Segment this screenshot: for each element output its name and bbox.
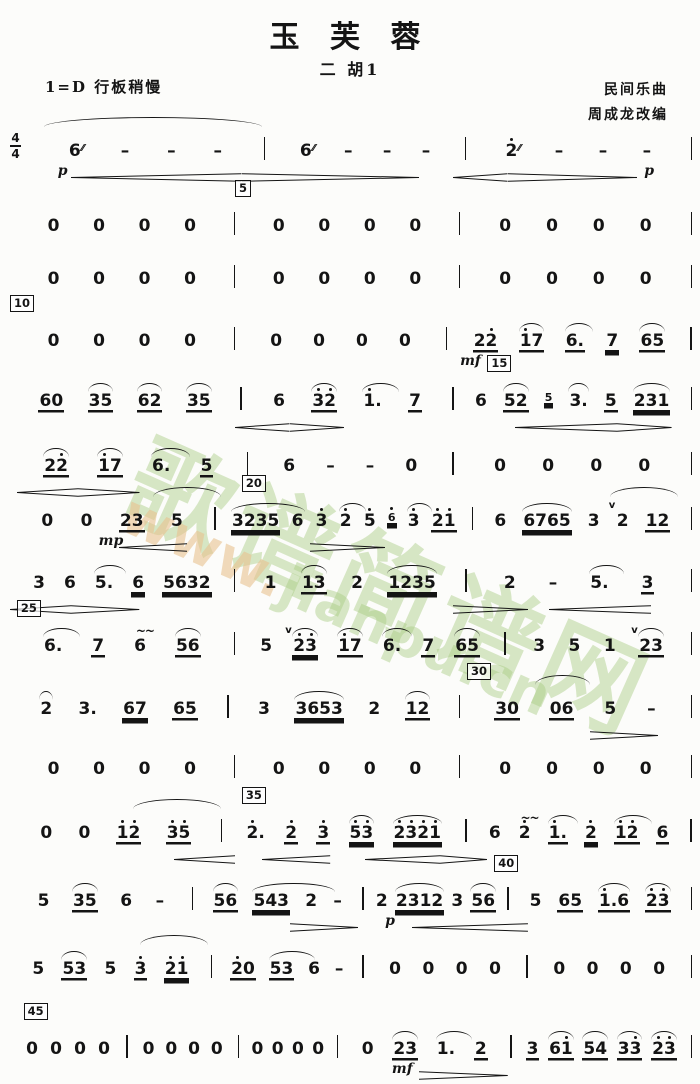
note-group: 1 (603, 638, 617, 655)
note-digit: 5 (570, 893, 582, 910)
note-digit: 2 (417, 701, 429, 718)
note-group: 0 (552, 961, 566, 978)
note-digit: 0 (252, 1041, 264, 1058)
decrescendo-hairpin (419, 1065, 508, 1074)
note-group: 0 (73, 1041, 87, 1058)
note-group: 5632 (162, 575, 211, 592)
note-digit: 0 (139, 271, 151, 288)
measure: 5356– (10, 893, 192, 910)
note-group: 0 (592, 761, 606, 778)
slur-arc (407, 503, 432, 512)
note-digit: 0 (489, 961, 501, 978)
note-digit: 2 (585, 825, 597, 842)
note-digit: 0 (93, 761, 105, 778)
slur-arc (72, 883, 98, 892)
note-group: 65 (639, 333, 665, 350)
note-group: 0 (545, 218, 559, 235)
slur-arc (387, 565, 436, 574)
slur-arc (392, 1031, 418, 1040)
measure: 20536– (212, 961, 362, 978)
note-group: 12 (116, 825, 142, 842)
measure: 0000 (460, 271, 690, 288)
note-digit: . (602, 575, 608, 592)
score-row-14: 553532120536–00000000 (10, 948, 692, 978)
note-digit: 6 (483, 893, 495, 910)
note-group: 6 (493, 513, 507, 530)
note-digit: 3 (317, 825, 329, 842)
crescendo-hairpin (412, 917, 528, 926)
note-digit: 5 (95, 575, 107, 592)
note-digit: 2 (305, 893, 317, 910)
crescendo-hairpin (17, 482, 78, 491)
slur-arc (617, 1031, 643, 1040)
slur-arc (519, 323, 545, 332)
note-digit: 2 (231, 961, 243, 978)
note-digit: 6 (69, 143, 81, 160)
note-digit: 3 (451, 893, 463, 910)
note-digit: 6 (523, 513, 535, 530)
note-group: 0 (49, 1041, 63, 1058)
note-digit: 5 (545, 392, 553, 403)
note-group: v23 (292, 638, 318, 655)
note-digit: 6 (44, 638, 56, 655)
note-group: 0 (545, 761, 559, 778)
note-group: 0 (25, 1041, 39, 1058)
note-digit: 2 (340, 513, 352, 530)
note-digit: 0 (364, 761, 376, 778)
note-group: 35 (88, 393, 114, 410)
decrescendo-hairpin (508, 167, 638, 176)
note-group: 0 (39, 825, 53, 842)
rehearsal-number: 40 (494, 855, 518, 872)
measure: 2⁄⁄––– (466, 143, 690, 160)
note-digit: 3 (412, 575, 424, 592)
note-digit: 3 (630, 1041, 642, 1058)
note-group: 3 (526, 1041, 540, 1058)
barline (691, 452, 693, 475)
measure: 565432– (193, 893, 362, 910)
measure: 5651.623 (509, 893, 691, 910)
note-digit: 0 (356, 333, 368, 350)
note-group: 35 (166, 825, 192, 842)
note-digit: 6 (64, 575, 76, 592)
note-digit: 5 (268, 513, 280, 530)
note-digit: 2 (400, 575, 412, 592)
note-group: 0 (142, 1041, 156, 1058)
note-digit: 5 (38, 893, 50, 910)
note-digit: 0 (50, 1041, 62, 1058)
note-group: – (421, 143, 432, 160)
rehearsal-number: 30 (467, 663, 491, 680)
note-group: 0 (40, 513, 54, 530)
score-row-6: 22176.56––00000 (10, 445, 692, 475)
note-digit: 0 (640, 761, 652, 778)
note-digit: 2 (247, 825, 259, 842)
note-digit: 5 (604, 701, 616, 718)
note-digit: 3 (258, 701, 270, 718)
note-digit: . (395, 638, 401, 655)
note-digit: 7 (135, 701, 147, 718)
crescendo-hairpin (365, 849, 440, 858)
breath-mark-icon: v (285, 626, 292, 636)
note-digit: 3 (89, 393, 101, 410)
barline (691, 137, 693, 160)
note-digit: 1 (406, 701, 418, 718)
note-digit: 0 (409, 218, 421, 235)
note-group: 65 (172, 701, 198, 718)
note-group: 65 (454, 638, 480, 655)
note-digit: 0 (98, 1041, 110, 1058)
note-digit: 5 (85, 893, 97, 910)
note-group: 0 (272, 218, 286, 235)
note-digit: 5 (569, 638, 581, 655)
note-group: 5. (589, 575, 609, 592)
note-group: 0 (271, 1041, 285, 1058)
note-digit: 0 (640, 218, 652, 235)
note-digit: 0 (409, 271, 421, 288)
note-digit: 3 (314, 575, 326, 592)
measure: 0000 (10, 1041, 126, 1058)
note-group: – (554, 143, 565, 160)
note-group: 3235 (231, 513, 280, 530)
note-group: v2 (616, 513, 630, 530)
note-group: 0 (363, 271, 377, 288)
note-digit: 5 (100, 393, 112, 410)
slur-arc (39, 691, 53, 700)
decrescendo-hairpin (78, 482, 139, 491)
note-group: 0 (592, 218, 606, 235)
barline (691, 265, 693, 288)
note-group: 0 (408, 761, 422, 778)
rehearsal-number: 5 (235, 180, 251, 197)
note-digit: 3 (651, 638, 663, 655)
crescendo-hairpin (235, 417, 290, 426)
note-group: 2 (367, 701, 381, 718)
measure: 5535321 (10, 961, 211, 978)
note-digit: 2 (376, 893, 388, 910)
note-group: 3. (78, 701, 98, 718)
breath-mark-icon: v (631, 626, 638, 636)
note-group: 5 (200, 458, 214, 475)
measure: 0000 (460, 761, 690, 778)
note-digit: . (107, 575, 113, 592)
note-group: 17 (519, 333, 545, 350)
note-digit: 2 (504, 575, 516, 592)
tie-arc (133, 799, 222, 809)
note-group: 5 (37, 893, 51, 910)
note-digit: 5 (214, 893, 226, 910)
slur-arc (252, 883, 335, 892)
note-group: 7 (408, 393, 422, 410)
note-group: 0 (47, 333, 61, 350)
note-group: 65 (557, 893, 583, 910)
crescendo-hairpin (262, 849, 330, 858)
note-group: 0 (545, 271, 559, 288)
note-digit: 6 (120, 893, 132, 910)
note-digit: 3 (405, 825, 417, 842)
note-digit: 1 (561, 1041, 573, 1058)
slur-arc (633, 383, 671, 392)
note-digit: 0 (405, 458, 417, 475)
barline (691, 755, 693, 778)
score-row-9: 6.76~~565v23176.765351v2325 (10, 625, 692, 655)
note-group: 543 (252, 893, 290, 910)
score-row-13: 5356–565432–223123565651.62340p (10, 880, 692, 910)
note-group: – (365, 458, 376, 475)
note-digit: 5 (199, 393, 211, 410)
note-digit: 0 (494, 458, 506, 475)
note-digit: 0 (273, 761, 285, 778)
measure: 30065– (460, 701, 690, 718)
note-group: 12 (614, 825, 640, 842)
measure: 365.65632 (10, 575, 234, 592)
note-digit: . (164, 458, 170, 475)
slur-arc (395, 883, 444, 892)
note-digit: 5 (185, 701, 197, 718)
note-digit: 0 (389, 961, 401, 978)
note-group: 0 (312, 333, 326, 350)
slur-arc (522, 503, 571, 512)
slur-arc (645, 883, 671, 892)
note-digit: . (578, 333, 584, 350)
tie-arc (140, 935, 208, 945)
note-digit: 6 (558, 893, 570, 910)
note-group: 0 (80, 513, 94, 530)
note-digit: 0 (184, 218, 196, 235)
note-group: 23 (645, 893, 671, 910)
note-digit: 0 (640, 271, 652, 288)
note-digit: 3 (33, 575, 45, 592)
note-digit: . (449, 1041, 455, 1058)
note-digit: 2 (324, 393, 336, 410)
measure: 0000 (235, 271, 459, 288)
note-digit: 1 (265, 575, 277, 592)
note-digit: 0 (620, 961, 632, 978)
note-group: 6765 (522, 513, 571, 530)
note-group: 17 (97, 458, 123, 475)
dash-rest: – (647, 701, 656, 718)
note-digit: 2 (617, 513, 629, 530)
note-digit: . (56, 638, 62, 655)
note-group: 0 (210, 1041, 224, 1058)
decrescendo-hairpin (290, 417, 345, 426)
note-group: 7 (605, 333, 619, 350)
note-digit: 1 (98, 458, 110, 475)
note-digit: 6 (300, 143, 312, 160)
slur-arc (651, 1031, 677, 1040)
measure: 0000 (10, 271, 234, 288)
note-group: 0 (498, 271, 512, 288)
note-group: 0 (92, 333, 106, 350)
measure: 00235 (10, 513, 214, 530)
note-digit: 3 (361, 825, 373, 842)
note-group: 6 (119, 893, 133, 910)
decrescendo-hairpin (242, 167, 419, 176)
note-digit: 7 (422, 638, 434, 655)
note-group: 23 (392, 1041, 418, 1058)
note-digit: 6 (292, 513, 304, 530)
note-digit: 3 (73, 893, 85, 910)
note-group: 3 (315, 513, 329, 530)
note-group: 0 (272, 761, 286, 778)
dash-rest: – (549, 575, 558, 592)
measure: 60356235 (10, 393, 240, 410)
note-group: 0 (493, 458, 507, 475)
measure: 0000 (10, 333, 234, 350)
slur-arc (405, 691, 431, 700)
note-group: 6 (307, 961, 321, 978)
note-group: 12 (645, 513, 671, 530)
note-digit: 3 (316, 513, 328, 530)
time-signature: 44 (10, 132, 21, 160)
note-digit: 2 (56, 458, 68, 475)
barline (690, 819, 692, 842)
dash-rest: – (344, 143, 353, 160)
note-digit: 1 (420, 893, 432, 910)
note-group: 2312 (395, 893, 444, 910)
measure: 351v23 (506, 638, 691, 655)
note-digit: 3 (408, 893, 420, 910)
rehearsal-number: 10 (10, 295, 34, 312)
note-digit: 0 (409, 761, 421, 778)
note-group: 3 (407, 513, 421, 530)
note-digit: 0 (184, 333, 196, 350)
score-row-12: 0012352.2353232162~~1.212635 (10, 812, 692, 842)
note-digit: 3 (618, 1041, 630, 1058)
note-group: 32 (311, 393, 337, 410)
note-digit: 0 (272, 1041, 284, 1058)
decrescendo-hairpin (71, 599, 139, 608)
note-group: 0 (408, 271, 422, 288)
note-digit: . (90, 701, 96, 718)
note-digit: 1 (657, 393, 669, 410)
note-group: 52 (503, 393, 529, 410)
note-group: 13 (301, 575, 327, 592)
note-digit: 2 (634, 393, 646, 410)
note-digit: 2 (652, 1041, 664, 1058)
note-group: 56 (213, 893, 239, 910)
note-group: 2 (284, 825, 298, 842)
note-digit: . (375, 393, 381, 410)
note-group: 6. (565, 333, 585, 350)
note-digit: 0 (165, 1041, 177, 1058)
note-digit: 0 (48, 333, 60, 350)
note-digit: 2 (44, 458, 56, 475)
grace-note-group: 6 (387, 512, 397, 523)
measure: 001235 (10, 825, 221, 842)
note-digit: 6 (657, 825, 669, 842)
note-digit: 5 (270, 961, 282, 978)
note-digit: 0 (364, 271, 376, 288)
note-digit: 0 (593, 271, 605, 288)
note-digit: 3 (256, 513, 268, 530)
note-digit: 0 (188, 1041, 200, 1058)
note-group: 0 (361, 1041, 375, 1058)
note-group: 3 (316, 825, 330, 842)
slur-arc (548, 1031, 574, 1040)
slur-arc (548, 815, 578, 824)
note-digit: 5 (201, 458, 213, 475)
note-digit: 2 (129, 825, 141, 842)
barline (691, 569, 693, 592)
note-digit: 3 (132, 513, 144, 530)
note-group: 5 (568, 638, 582, 655)
slur-arc (43, 628, 80, 637)
grace-note-group: 5 (544, 392, 554, 403)
slur-arc (186, 383, 212, 392)
note-digit: 3 (664, 1041, 676, 1058)
measure: 0000 (10, 761, 234, 778)
note-digit: 3 (527, 1041, 539, 1058)
slur-arc (339, 503, 367, 512)
note-group: 0 (311, 1041, 325, 1058)
note-digit: 0 (48, 271, 60, 288)
slur-arc (151, 448, 190, 457)
note-digit: 5 (171, 513, 183, 530)
slur-arc (213, 883, 239, 892)
barline (691, 1035, 693, 1058)
slur-arc (436, 1031, 473, 1040)
note-group: 6⁄⁄ (68, 143, 84, 160)
note-group: – (166, 143, 177, 160)
note-group: 0 (47, 218, 61, 235)
tie-arc (535, 675, 590, 685)
note-group: 0 (363, 761, 377, 778)
note-group: 60 (38, 393, 64, 410)
slur-arc (301, 565, 327, 574)
sheet-music-page: { "header": { "title": "玉 芙 蓉", "subtitl… (0, 0, 700, 1082)
note-digit: . (258, 825, 264, 842)
note-group: 0 (269, 333, 283, 350)
score-row-2: 0000000000005 (10, 205, 692, 235)
note-group: 0 (138, 271, 152, 288)
note-group: 2⁄⁄ (505, 143, 521, 160)
note-digit: 0 (499, 218, 511, 235)
measure: 0000 (10, 218, 234, 235)
note-group: 0 (639, 218, 653, 235)
rehearsal-number: 25 (17, 600, 41, 617)
note-digit: 3 (187, 575, 199, 592)
note-group: 0 (498, 218, 512, 235)
note-digit: 2 (150, 393, 162, 410)
note-digit: 0 (48, 761, 60, 778)
note-digit: 5 (424, 575, 436, 592)
score-row-8: 365.65632113212352–5.3 (10, 562, 692, 592)
note-group: 0 (589, 458, 603, 475)
note-digit: 6 (388, 512, 396, 523)
note-group: – (642, 143, 653, 160)
note-digit: 0 (318, 761, 330, 778)
note-digit: 6 (307, 701, 319, 718)
note-group: 6 (282, 458, 296, 475)
note-group: 0 (47, 761, 61, 778)
measure: 2.23532321 (222, 825, 465, 842)
note-group: 3653 (294, 701, 343, 718)
note-digit: 3 (312, 393, 324, 410)
note-digit: 6 (175, 575, 187, 592)
note-group: 0 (592, 271, 606, 288)
note-digit: 2 (658, 513, 670, 530)
note-group: – (598, 143, 609, 160)
note-digit: 3 (405, 1041, 417, 1058)
note-digit: 0 (93, 218, 105, 235)
note-digit: 6 (273, 393, 285, 410)
note-group: 67 (122, 701, 148, 718)
note-digit: 5 (605, 393, 617, 410)
note-group: 6 (272, 393, 286, 410)
note-digit: 5 (163, 575, 175, 592)
decrescendo-hairpin (310, 537, 385, 546)
